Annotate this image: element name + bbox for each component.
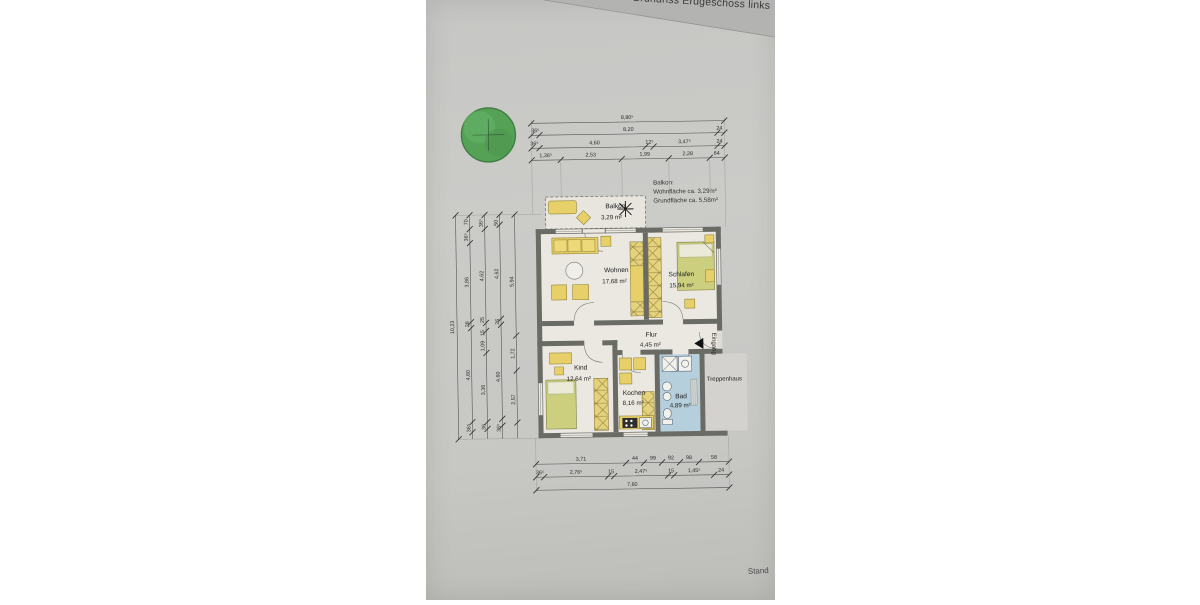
dim: 36⁵: [466, 424, 472, 432]
wohnen-name: Wohnen: [604, 267, 629, 274]
dim: 2,47⁵: [635, 469, 648, 475]
dim: 3,47⁵: [678, 139, 691, 145]
dim: 44: [632, 456, 638, 462]
dim: 58: [711, 455, 717, 461]
sink: [639, 418, 651, 428]
dim: 1,45⁵: [688, 468, 701, 474]
dim: 4,60: [496, 371, 502, 382]
dim: 1,72: [510, 348, 516, 359]
dim: 15: [480, 330, 486, 336]
dim: 7,60: [627, 482, 638, 488]
dim: 36⁵: [531, 128, 539, 134]
dim: 24: [716, 126, 722, 132]
bad-name: Bad: [675, 393, 687, 400]
kochen-name: Kochen: [623, 390, 646, 397]
dim: 3,86: [464, 277, 470, 288]
eingang-label: Eingang: [710, 333, 716, 355]
dim: 92: [668, 455, 674, 461]
dim: 36⁵: [479, 219, 485, 227]
kind-name: Kind: [574, 365, 588, 372]
dimension-bottom: 3,71 44 99 92 98 58 36⁵ 2,76⁵ 15 2,47⁵ 1…: [533, 436, 733, 494]
dim: 15: [608, 469, 614, 475]
dim: 3,71: [576, 457, 587, 463]
floorplan-drawing: Grundriss Erdgeschoss links Balkon: Wohn…: [426, 0, 775, 600]
schlafen-area: 15,94 m²: [669, 282, 694, 289]
dim: 4,60: [466, 370, 472, 381]
dim: 36: [481, 424, 487, 430]
flur-area: 4,45 m²: [640, 342, 661, 349]
dim: 1,99: [639, 152, 650, 158]
tree-icon: [461, 108, 516, 163]
dim: 50: [494, 220, 500, 226]
page-title-strip: Grundriss Erdgeschoss links: [544, 0, 775, 37]
treppenhaus-label: Treppenhaus: [707, 376, 742, 382]
dim: 8,80⁵: [621, 115, 634, 121]
dim: 36⁵: [464, 233, 470, 241]
floor-plan: Balkon 3,29 m² Wohnen 17,68 m² Schlafen …: [535, 194, 747, 438]
kind-area: 12,64 m²: [567, 375, 592, 382]
wohnen-area: 17,68 m²: [602, 278, 627, 285]
dim: 24: [716, 139, 722, 145]
balkon-note: Balkon: Wohnfläche ca. 3,29m² Grundfläch…: [653, 179, 718, 205]
kochen-area: 8,16 m²: [623, 400, 644, 407]
floorplan-photo: Grundriss Erdgeschoss links Balkon: Wohn…: [426, 0, 775, 600]
washbasin: [662, 382, 671, 391]
dim: 36⁵: [530, 141, 538, 147]
dim: 28: [465, 321, 471, 327]
stove: [622, 418, 637, 428]
stand-label: Stand: [748, 566, 769, 576]
bad-area: 4,89 m²: [670, 402, 691, 409]
entrance-opening: [717, 331, 722, 349]
washer: [679, 356, 692, 371]
dim: 4,62: [494, 269, 500, 280]
dim: 10,23: [450, 321, 456, 335]
dim: 12⁵: [645, 140, 653, 146]
treppenhaus-floor: [704, 353, 747, 431]
dim: 70: [464, 219, 470, 225]
washbasin-2: [663, 392, 671, 400]
dim: 1,09: [480, 341, 486, 352]
dim: 98: [686, 455, 692, 461]
balkon-note-line2: Wohnfläche ca. 3,29m²: [653, 188, 717, 196]
radiator: [691, 379, 697, 405]
balkon-note-line1: Balkon:: [653, 179, 674, 186]
plan-scene: Balkon: Wohnfläche ca. 3,29m² Grundfläch…: [447, 104, 748, 494]
dim: 4,62: [479, 271, 485, 282]
dim: 3,36: [481, 385, 487, 396]
dim: 24: [718, 468, 724, 474]
balkon-area: 3,29 m²: [601, 214, 622, 221]
dim: 36⁵: [536, 470, 544, 476]
dim: 5,94: [509, 276, 515, 287]
dim: 26: [495, 319, 501, 325]
round-table: [566, 262, 583, 279]
wc: [663, 408, 671, 418]
flur-name: Flur: [645, 332, 657, 339]
dim: 1,36⁵: [539, 153, 552, 159]
balkon-note-line3: Grundfläche ca. 5,58m²: [653, 197, 718, 205]
balkon-name: Balkon: [605, 203, 626, 210]
dim: 2,53: [585, 152, 596, 158]
dim: 15: [668, 468, 674, 474]
dim: 2,28: [682, 151, 693, 157]
dim: 36⁵: [496, 424, 502, 432]
schlafen-name: Schlafen: [668, 271, 694, 278]
dim: 2,76⁵: [570, 470, 583, 476]
dim: 64: [714, 151, 720, 157]
dim: 25: [480, 317, 486, 323]
dimension-left: 10,23 70 36⁵ 3,86 28 4,60 36⁵ 36⁵ 4,62 2…: [448, 211, 545, 442]
dim: 2,57: [511, 394, 517, 405]
dim: 4,60: [589, 140, 600, 146]
dim: 99: [650, 456, 656, 462]
dim: 8,20: [623, 127, 634, 133]
